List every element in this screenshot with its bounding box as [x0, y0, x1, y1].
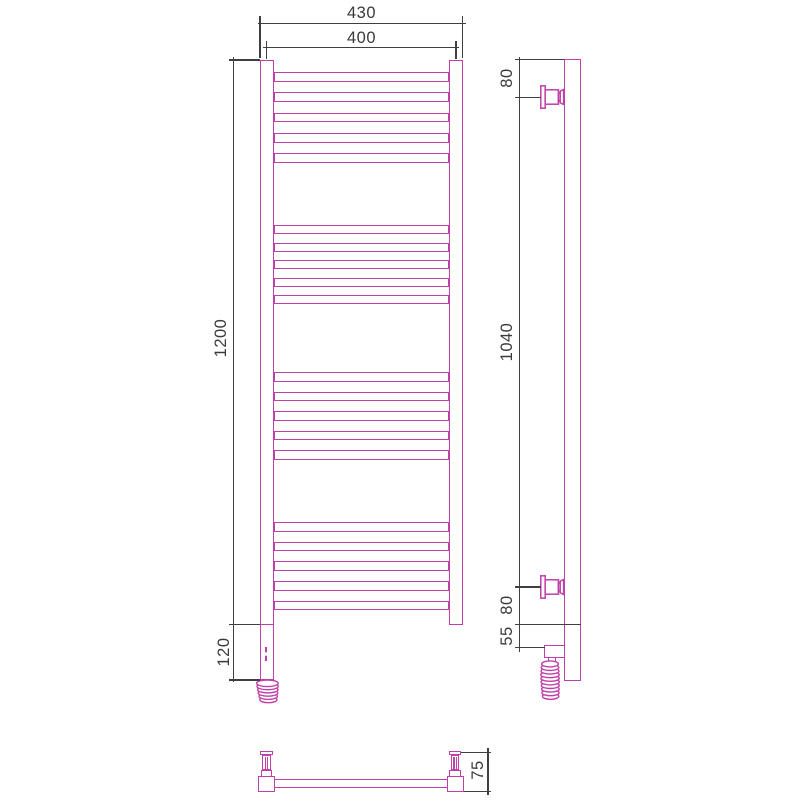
dim-1040-label: 1040	[498, 315, 516, 369]
extension-line-400-left	[266, 41, 268, 59]
wall-bracket-bottom	[540, 575, 565, 599]
dim-80-top-label: 80	[498, 56, 516, 100]
extension-line-430-right	[462, 16, 464, 58]
front-power-cord-coil	[255, 680, 281, 703]
rung	[274, 372, 450, 382]
rung	[274, 411, 450, 421]
rung-group-4	[274, 522, 450, 611]
rung-group-3	[274, 372, 450, 460]
left-post	[260, 60, 274, 680]
side-leader-bottom-bracket	[515, 586, 541, 588]
rung	[274, 92, 450, 102]
rung	[274, 243, 450, 252]
rung	[274, 542, 450, 552]
bracket-left-stem-inner-1	[265, 757, 266, 770]
rung	[274, 260, 450, 269]
dim-line-120	[233, 624, 235, 682]
rung	[274, 295, 450, 304]
rung	[274, 133, 450, 143]
dim-line-400	[263, 47, 459, 49]
side-tube	[564, 59, 581, 681]
rung	[274, 278, 450, 287]
dim-line-430	[258, 23, 467, 25]
side-leader-top-bracket	[515, 97, 541, 99]
side-leader-rail-bottom	[515, 624, 581, 626]
bracket-left-collar	[261, 770, 272, 777]
extension-line-430-left	[259, 16, 261, 58]
extension-line-120-bottom	[229, 679, 260, 681]
side-leader-top	[515, 59, 564, 61]
rung	[274, 581, 450, 591]
bottom-left-post	[258, 776, 276, 792]
right-post	[449, 60, 463, 625]
extension-line-400-right	[455, 41, 457, 59]
extension-line-1200-top	[229, 59, 260, 61]
dim-1200-label: 1200	[212, 308, 230, 368]
dim-55-label: 55	[498, 614, 516, 658]
rung	[274, 225, 450, 234]
side-leader-heater	[515, 647, 545, 649]
rung	[274, 72, 450, 82]
bracket-right-stem-inner-1	[453, 757, 454, 770]
rung	[274, 153, 450, 163]
cross-tube	[265, 779, 455, 789]
wall-bracket-top	[540, 85, 565, 109]
dim-line-1200	[233, 57, 235, 625]
rung-group-1	[274, 72, 450, 163]
side-power-cord-coil	[539, 660, 562, 700]
rung	[274, 392, 450, 402]
rung	[274, 601, 450, 611]
bracket-right-collar	[449, 770, 460, 777]
heater-joint-line	[260, 624, 274, 626]
dim-75-label: 75	[469, 748, 487, 792]
extension-line-75-bottom	[464, 791, 491, 793]
rung	[274, 113, 450, 123]
bracket-left-stem-inner-2	[267, 757, 268, 770]
technical-drawing-canvas: 430 400 1200	[0, 0, 800, 800]
power-switch-mark	[265, 647, 267, 661]
extension-line-75-top	[461, 752, 491, 754]
side-dim-line	[519, 57, 521, 652]
rung	[274, 431, 450, 441]
dim-120-label: 120	[215, 622, 233, 682]
rung	[274, 561, 450, 571]
bottom-right-post	[447, 776, 465, 792]
bracket-right-stem-inner-2	[456, 757, 457, 770]
dim-430-label: 430	[332, 4, 392, 22]
rung-group-2	[274, 225, 450, 304]
rung	[274, 450, 450, 460]
dim-400-label: 400	[332, 29, 392, 47]
dim-line-75	[487, 748, 489, 795]
rung	[274, 522, 450, 532]
